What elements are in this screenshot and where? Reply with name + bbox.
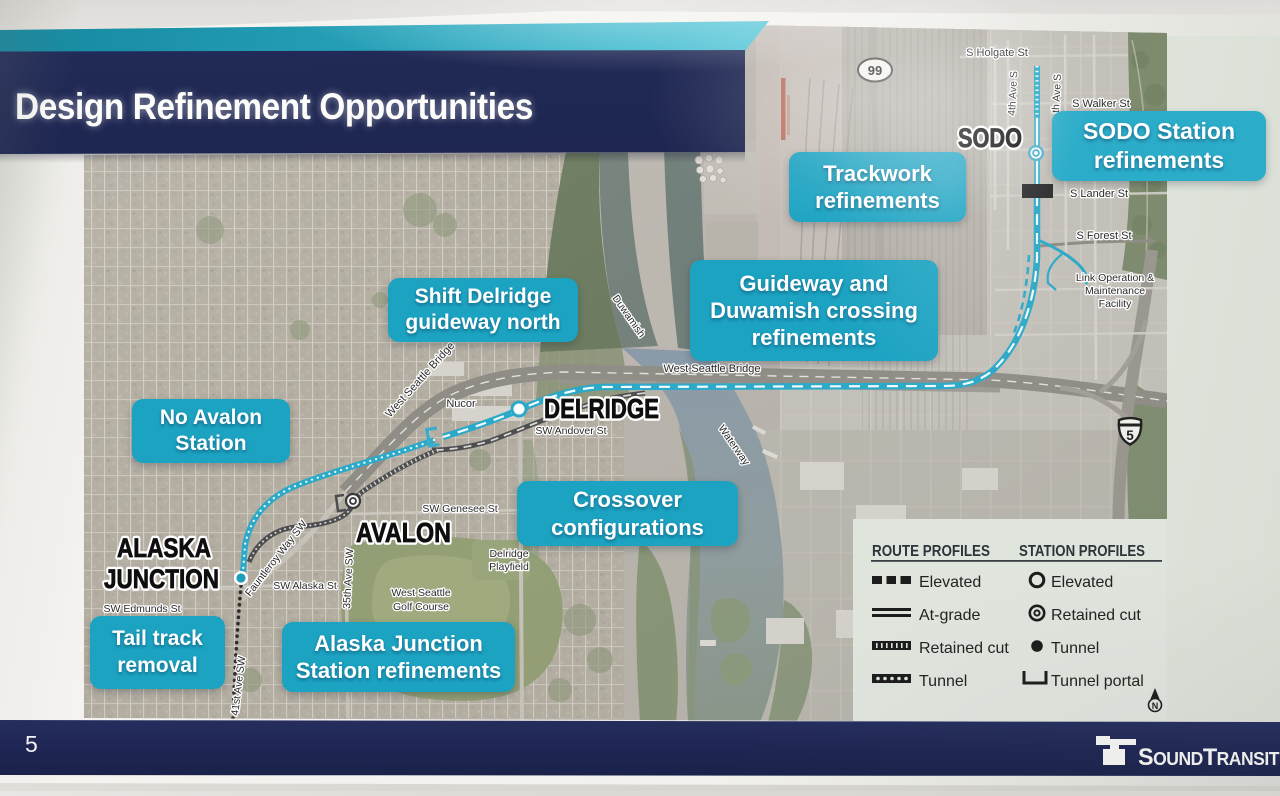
svg-text:STATION PROFILES: STATION PROFILES bbox=[1019, 543, 1145, 560]
svg-text:Retained cut: Retained cut bbox=[919, 640, 1009, 657]
svg-text:N: N bbox=[1152, 701, 1159, 711]
svg-text:Link Operation &: Link Operation & bbox=[1076, 272, 1154, 284]
svg-text:Maintenance: Maintenance bbox=[1085, 285, 1145, 297]
svg-text:SODO: SODO bbox=[958, 123, 1022, 153]
svg-text:4th Ave S: 4th Ave S bbox=[1006, 71, 1020, 116]
svg-text:Tunnel portal: Tunnel portal bbox=[1051, 673, 1144, 690]
svg-text:Retained cut: Retained cut bbox=[1051, 607, 1141, 624]
svg-text:Elevated: Elevated bbox=[919, 574, 981, 591]
svg-text:Playfield: Playfield bbox=[489, 561, 529, 573]
svg-text:Facility: Facility bbox=[1099, 298, 1132, 310]
svg-text:S Forest St: S Forest St bbox=[1076, 230, 1131, 242]
svg-text:West Seattle Bridge: West Seattle Bridge bbox=[663, 363, 760, 375]
svg-text:SW Genesee St: SW Genesee St bbox=[422, 503, 497, 515]
svg-text:JUNCTION: JUNCTION bbox=[104, 564, 219, 594]
svg-text:Tunnel: Tunnel bbox=[1051, 640, 1099, 657]
svg-text:Delridge: Delridge bbox=[489, 548, 528, 560]
svg-text:Tunnel: Tunnel bbox=[919, 673, 967, 690]
svg-text:ROUTE PROFILES: ROUTE PROFILES bbox=[872, 543, 990, 560]
svg-text:SOUNDTRANSIT: SOUNDTRANSIT bbox=[1138, 744, 1279, 770]
svg-text:AVALON: AVALON bbox=[356, 517, 451, 548]
svg-text:Nucor: Nucor bbox=[446, 398, 476, 410]
svg-text:ALASKA: ALASKA bbox=[117, 533, 211, 563]
svg-text:DELRIDGE: DELRIDGE bbox=[544, 393, 659, 424]
svg-text:West Seattle: West Seattle bbox=[391, 587, 450, 599]
svg-text:SW Andover St: SW Andover St bbox=[535, 425, 606, 437]
svg-text:Elevated: Elevated bbox=[1051, 574, 1113, 591]
svg-text:SW Edmunds St: SW Edmunds St bbox=[103, 603, 180, 615]
svg-text:At-grade: At-grade bbox=[919, 607, 980, 624]
svg-text:S Holgate St: S Holgate St bbox=[966, 47, 1028, 59]
svg-text:Golf Course: Golf Course bbox=[393, 601, 449, 613]
svg-text:S Lander St: S Lander St bbox=[1070, 188, 1128, 200]
svg-text:S Walker St: S Walker St bbox=[1072, 98, 1130, 110]
svg-text:SW Alaska St: SW Alaska St bbox=[273, 580, 337, 592]
svg-text:th Ave S: th Ave S bbox=[1050, 74, 1064, 113]
